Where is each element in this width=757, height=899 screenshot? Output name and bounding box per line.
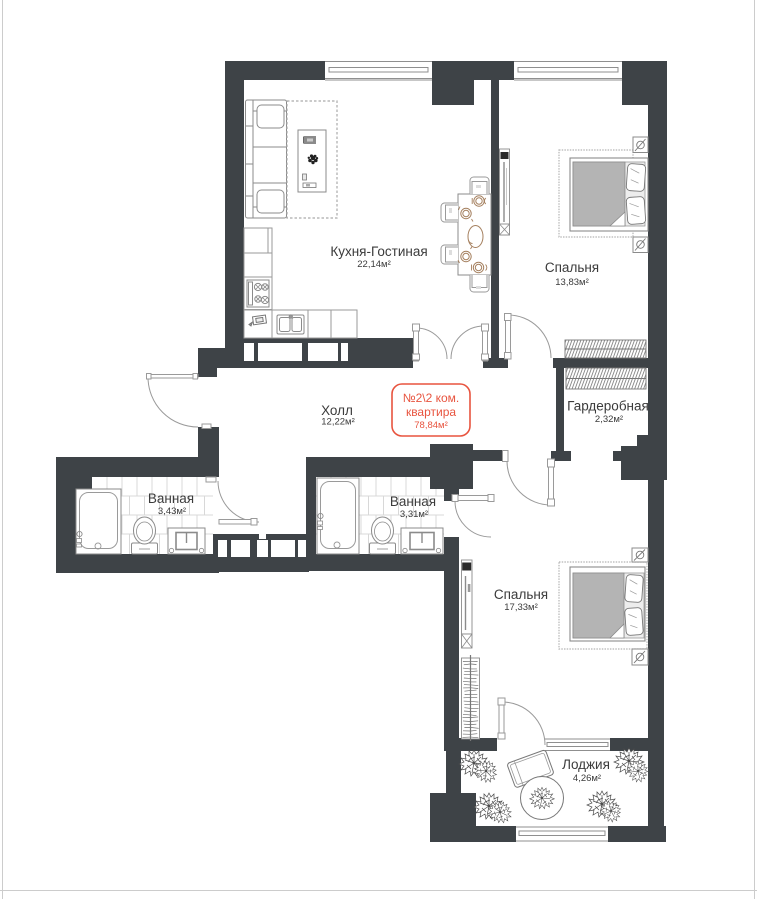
svg-text:78,84м²: 78,84м²	[414, 420, 447, 431]
svg-text:Ванная: Ванная	[390, 494, 436, 509]
svg-text:12,22м²: 12,22м²	[321, 417, 354, 428]
svg-text:4,26м²: 4,26м²	[573, 773, 601, 784]
svg-text:3,31м²: 3,31м²	[400, 509, 428, 520]
svg-text:3,43м²: 3,43м²	[158, 506, 186, 517]
svg-text:Лоджия: Лоджия	[562, 757, 610, 772]
svg-text:Спальня: Спальня	[545, 260, 599, 275]
svg-text:Ванная: Ванная	[148, 491, 194, 506]
svg-text:13,83м²: 13,83м²	[555, 277, 588, 288]
svg-text:2,32м²: 2,32м²	[595, 414, 623, 425]
svg-text:17,33м²: 17,33м²	[504, 602, 537, 613]
svg-text:квартира: квартира	[406, 405, 456, 419]
svg-text:Кухня-Гостиная: Кухня-Гостиная	[330, 244, 427, 259]
svg-text:22,14м²: 22,14м²	[357, 259, 390, 270]
svg-text:Гардеробная: Гардеробная	[567, 399, 649, 414]
svg-text:Спальня: Спальня	[494, 587, 548, 602]
svg-text:№2\2 ком.: №2\2 ком.	[403, 391, 460, 405]
